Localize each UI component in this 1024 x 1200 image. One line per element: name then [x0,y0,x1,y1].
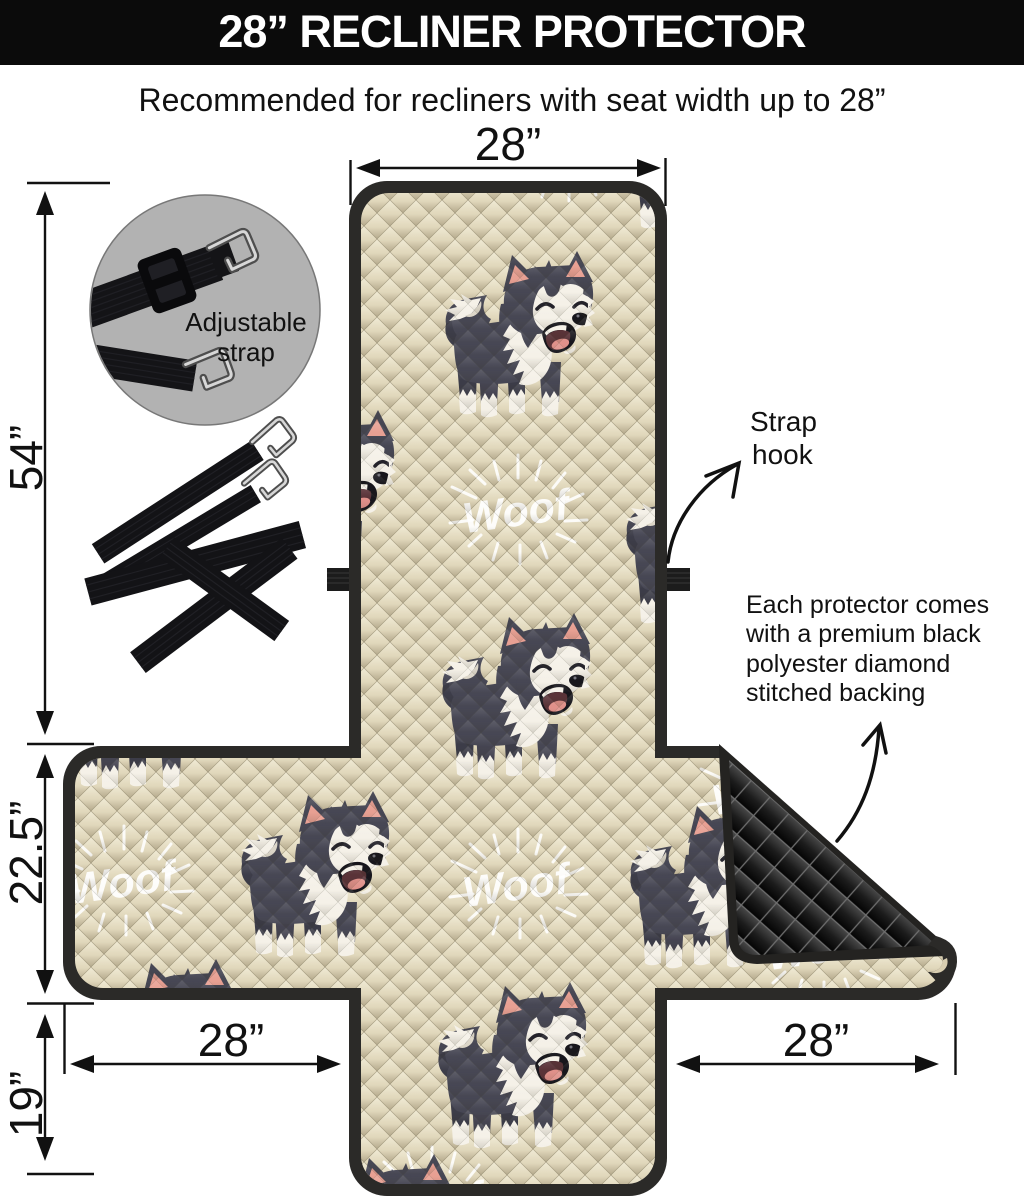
svg-text:28”: 28” [783,1014,849,1066]
svg-text:stitched backing: stitched backing [746,679,925,707]
svg-text:Strap: Strap [750,406,817,437]
svg-text:strap: strap [217,337,275,367]
svg-text:polyester diamond: polyester diamond [746,650,950,678]
svg-text:19”: 19” [0,1071,52,1137]
svg-text:28” RECLINER PROTECTOR: 28” RECLINER PROTECTOR [218,6,806,57]
svg-text:Adjustable: Adjustable [185,307,306,337]
svg-text:hook: hook [752,439,814,470]
svg-text:with a premium black: with a premium black [745,620,981,648]
svg-text:Recommended for recliners with: Recommended for recliners with seat widt… [138,82,885,118]
svg-text:22.5”: 22.5” [0,801,52,906]
svg-text:28”: 28” [198,1014,264,1066]
svg-text:54”: 54” [0,425,52,491]
svg-text:28”: 28” [475,118,541,170]
svg-text:Each protector comes: Each protector comes [746,591,989,619]
